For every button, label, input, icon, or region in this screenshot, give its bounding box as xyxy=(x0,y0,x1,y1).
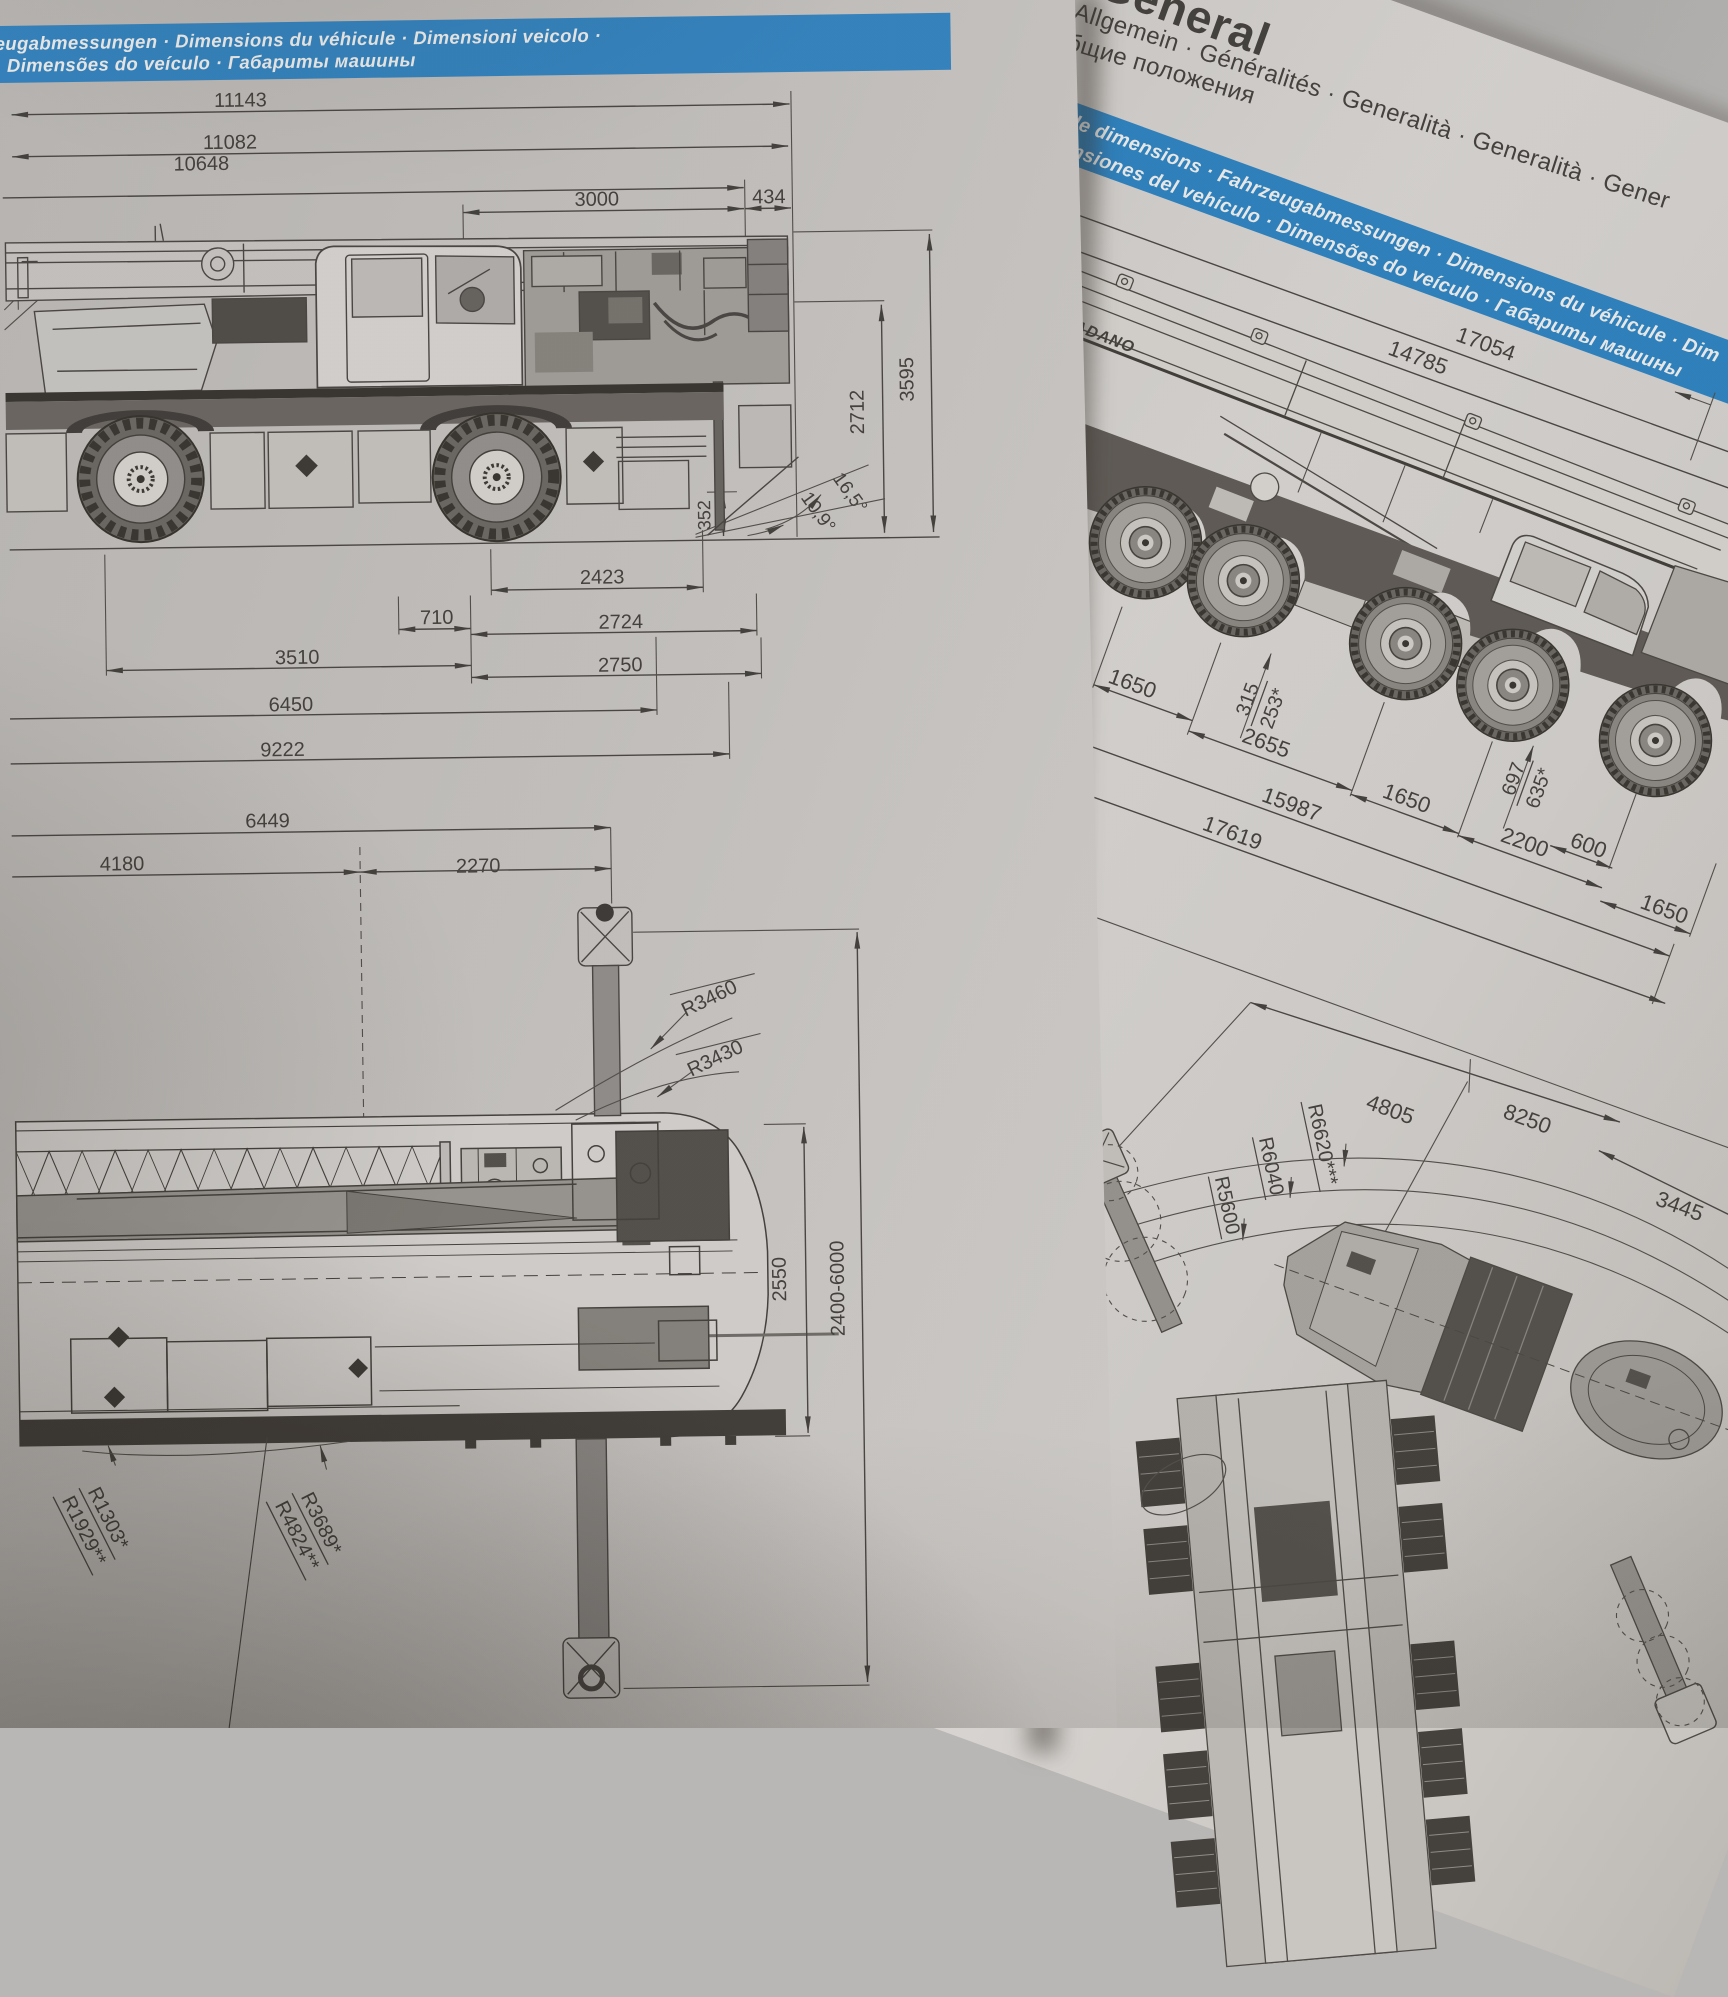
svg-text:17054: 17054 xyxy=(1453,322,1519,366)
svg-text:2712: 2712 xyxy=(847,390,870,435)
svg-text:1650: 1650 xyxy=(1105,663,1160,703)
svg-text:9222: 9222 xyxy=(260,739,305,762)
svg-text:2750: 2750 xyxy=(598,654,643,677)
svg-text:2200: 2200 xyxy=(1498,822,1553,862)
svg-text:352: 352 xyxy=(694,500,714,530)
svg-text:6449: 6449 xyxy=(245,810,290,833)
svg-text:8250: 8250 xyxy=(1500,1099,1555,1139)
svg-text:4805: 4805 xyxy=(1363,1089,1418,1129)
svg-text:16,5°: 16,5° xyxy=(828,469,871,517)
svg-text:3510: 3510 xyxy=(275,647,320,670)
svg-text:2550: 2550 xyxy=(769,1257,792,1302)
svg-text:2724: 2724 xyxy=(598,611,643,634)
svg-text:R3460: R3460 xyxy=(678,976,741,1021)
svg-text:17619: 17619 xyxy=(1200,810,1266,854)
svg-text:434: 434 xyxy=(752,186,786,208)
svg-text:600: 600 xyxy=(1567,827,1610,863)
svg-text:4180: 4180 xyxy=(100,853,145,876)
svg-text:3595: 3595 xyxy=(896,357,919,402)
svg-text:10,9°: 10,9° xyxy=(796,488,839,536)
svg-text:1650: 1650 xyxy=(1637,889,1692,929)
svg-text:1650: 1650 xyxy=(1380,778,1435,818)
svg-text:11143: 11143 xyxy=(214,89,267,112)
svg-text:3445: 3445 xyxy=(1652,1186,1707,1226)
svg-text:R6620***: R6620*** xyxy=(1303,1102,1342,1187)
svg-text:2423: 2423 xyxy=(580,566,625,589)
svg-text:11082: 11082 xyxy=(203,131,257,154)
svg-text:710: 710 xyxy=(420,607,454,629)
svg-text:2270: 2270 xyxy=(456,855,501,878)
svg-text:6450: 6450 xyxy=(268,694,313,717)
svg-text:10648: 10648 xyxy=(173,153,229,176)
svg-text:2400-6000: 2400-6000 xyxy=(826,1240,849,1336)
svg-text:3000: 3000 xyxy=(574,188,619,211)
svg-text:14785: 14785 xyxy=(1385,335,1451,379)
